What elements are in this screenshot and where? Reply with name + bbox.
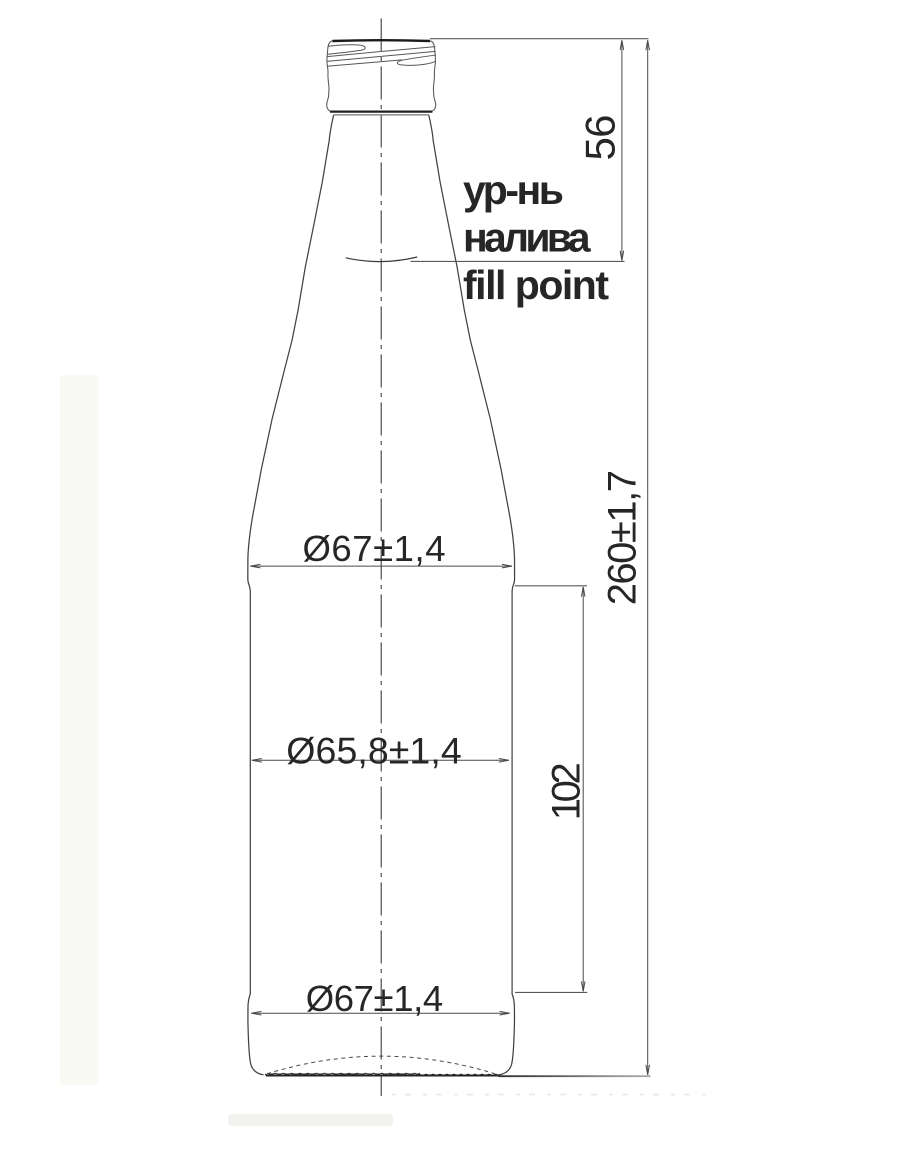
- svg-text:56: 56: [577, 115, 624, 161]
- svg-text:Ø67±1,4: Ø67±1,4: [306, 978, 444, 1019]
- svg-text:Ø65,8±1,4: Ø65,8±1,4: [286, 730, 461, 772]
- svg-text:Ø67±1,4: Ø67±1,4: [303, 528, 446, 569]
- svg-text:ур-нь: ур-нь: [463, 167, 564, 213]
- svg-text:260±1,7: 260±1,7: [601, 470, 645, 605]
- svg-text:fill point: fill point: [463, 262, 609, 308]
- svg-text:102: 102: [545, 762, 589, 820]
- svg-text:налива: налива: [463, 215, 592, 261]
